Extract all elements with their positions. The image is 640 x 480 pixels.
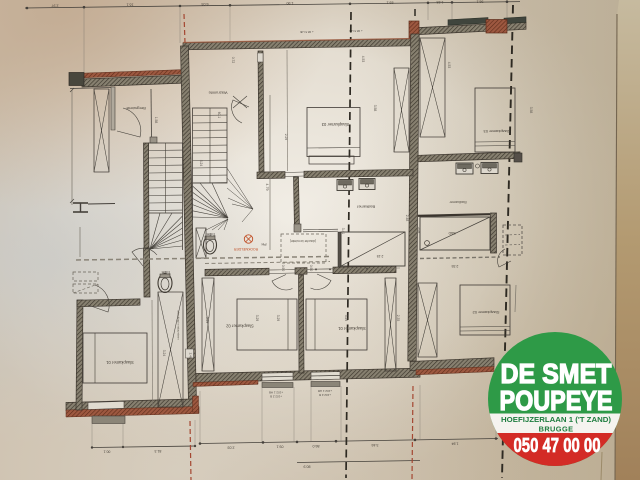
svg-text:HOEFIJZERLAAN 1 ('T ZAND): HOEFIJZERLAAN 1 ('T ZAND) (501, 415, 612, 424)
svg-text:Badkamer: Badkamer (356, 205, 375, 210)
svg-text:ROOKMELDER: ROOKMELDER (233, 247, 258, 251)
svg-text:2.03: 2.03 (228, 446, 235, 450)
svg-text:Slaapkamer 01: Slaapkamer 01 (106, 360, 134, 365)
svg-text:+102.1 HB: +102.1 HB (318, 389, 332, 393)
svg-text:2.29: 2.29 (284, 134, 288, 141)
svg-text:3.29: 3.29 (205, 317, 209, 324)
svg-text:4.53: 4.53 (447, 62, 451, 69)
svg-text:+102.2 B: +102.2 B (319, 393, 331, 397)
svg-text:4.79: 4.79 (265, 184, 269, 191)
svg-text:BRUGGE: BRUGGE (539, 425, 574, 434)
svg-text:3.29: 3.29 (276, 315, 280, 322)
svg-text:3.24: 3.24 (162, 350, 166, 357)
svg-text:86.0: 86.0 (313, 444, 320, 448)
svg-text:3.29: 3.29 (344, 315, 348, 322)
svg-text:1.64: 1.64 (409, 87, 413, 94)
svg-text:Badkamer: Badkamer (449, 200, 467, 204)
svg-text:1.28: 1.28 (437, 0, 444, 4)
svg-text:00.1: 00.1 (104, 450, 111, 454)
svg-text:0.90: 0.90 (281, 265, 285, 272)
svg-text:2.48: 2.48 (405, 215, 409, 222)
svg-text:afwerking in natuursteen: afwerking in natuursteen (177, 310, 181, 340)
svg-text:0.90: 0.90 (309, 265, 313, 272)
svg-text:80.9: 80.9 (304, 465, 311, 469)
svg-text:3.41: 3.41 (341, 228, 345, 235)
svg-text:3.58: 3.58 (373, 105, 377, 112)
svg-text:2.15: 2.15 (377, 254, 384, 258)
svg-text:+ 98.5 HB: + 98.5 HB (300, 30, 313, 34)
svg-text:1.90: 1.90 (287, 1, 294, 5)
svg-text:81.3: 81.3 (155, 449, 162, 453)
svg-text:Toilet: Toilet (206, 232, 216, 236)
svg-text:60.1: 60.1 (217, 112, 221, 119)
svg-text:3.46: 3.46 (372, 443, 379, 447)
svg-text:4.53: 4.53 (361, 56, 365, 63)
svg-text:PH: PH (261, 242, 266, 246)
svg-text:3.29: 3.29 (255, 315, 259, 322)
svg-text:3.58: 3.58 (529, 107, 533, 114)
svg-text:3.24: 3.24 (199, 160, 203, 167)
svg-text:16.1: 16.1 (127, 3, 134, 7)
svg-text:2.35: 2.35 (452, 264, 459, 268)
svg-text:(douche /w.ruimte): (douche /w.ruimte) (290, 239, 316, 243)
svg-text:2.35: 2.35 (396, 315, 400, 322)
svg-text:+102.2 B: +102.2 B (270, 395, 282, 399)
svg-text:89.1: 89.1 (387, 0, 394, 4)
svg-text:5.08: 5.08 (417, 227, 421, 234)
svg-text:0.72: 0.72 (231, 57, 235, 64)
svg-text:09.1: 09.1 (277, 445, 284, 449)
svg-text:Slaapkamer 03: Slaapkamer 03 (483, 129, 511, 134)
svg-text:Wasruimte: Wasruimte (208, 91, 228, 96)
svg-text:1.58: 1.58 (154, 117, 158, 124)
svg-text:+102.1 HB: +102.1 HB (269, 391, 283, 395)
svg-text:Slaapkamer 02: Slaapkamer 02 (226, 324, 254, 329)
svg-text:BAD: BAD (448, 231, 456, 235)
svg-text:2.48: 2.48 (189, 353, 193, 359)
svg-text:Slaapkamer 03: Slaapkamer 03 (321, 122, 349, 127)
svg-text:Slaapkamer 01: Slaapkamer 01 (338, 326, 366, 331)
svg-text:98.1: 98.1 (477, 0, 484, 4)
svg-text:050 47 00 00: 050 47 00 00 (514, 434, 601, 457)
svg-text:Slaapkamer 02: Slaapkamer 02 (472, 310, 500, 315)
svg-text:2.97: 2.97 (52, 4, 59, 8)
svg-text:1.84: 1.84 (452, 442, 459, 446)
svg-text:6.03: 6.03 (202, 2, 209, 6)
svg-text:POUPEYE: POUPEYE (500, 385, 613, 416)
svg-text:Toilet: Toilet (161, 270, 171, 274)
